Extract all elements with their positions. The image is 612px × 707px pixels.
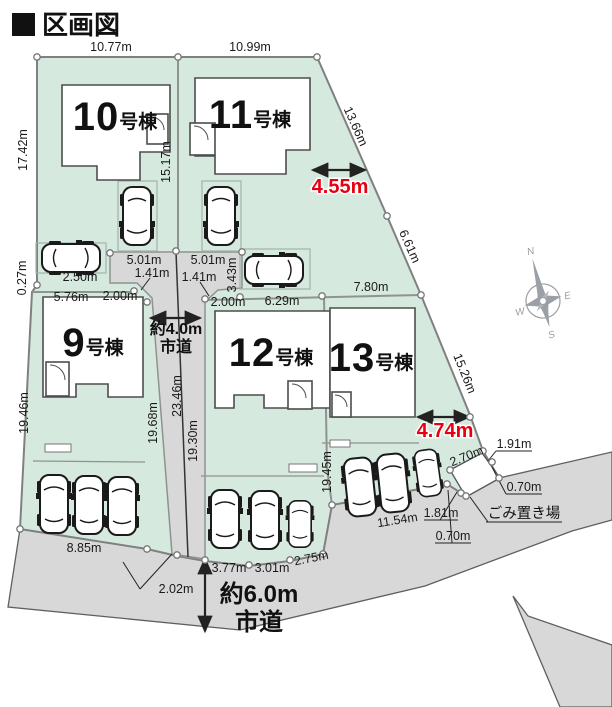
garbage-area-label: ごみ置き場: [488, 505, 561, 522]
dimension-label: 1.41m: [135, 266, 170, 280]
dimension-label: 0.70m: [507, 480, 542, 494]
compass-n: N: [526, 246, 536, 259]
compass-e: E: [563, 290, 572, 302]
road-4m-label: 市道: [160, 337, 192, 356]
road-6m-label: 約6.0m: [220, 580, 299, 608]
title-bullet-icon: [12, 13, 35, 36]
dimension-label: 2.50m: [63, 270, 98, 284]
dimension-label: 2.00m: [103, 289, 138, 303]
dimension-label: 2.00m: [211, 295, 246, 309]
dimension-label: 3.43m: [225, 258, 239, 293]
dimension-label: 6.29m: [265, 294, 300, 308]
dimension-label: 15.17m: [159, 141, 173, 183]
building-13-entry: [332, 392, 351, 417]
dimension-label: 5.76m: [54, 290, 89, 304]
plot-map-page: 区画図: [0, 0, 612, 707]
dimension-label: 5.01m: [191, 253, 226, 267]
dimension-label: 2.02m: [159, 582, 194, 596]
dimension-label: 23.46m: [170, 375, 184, 417]
dimension-label: 0.27m: [15, 261, 29, 296]
dimension-label: 19.30m: [186, 420, 200, 462]
dimension-label: 0.70m: [436, 529, 471, 543]
page-title: 区画図: [12, 10, 120, 40]
road-4m-label: 約4.0m: [150, 319, 202, 338]
dimension-label: 1.91m: [497, 437, 532, 451]
dimension-label-red: 4.55m: [312, 176, 369, 198]
road-branch: [513, 596, 612, 707]
dimension-label: 3.77m: [212, 561, 247, 575]
dimension-label: 17.42m: [16, 129, 30, 171]
dimension-label: 19.45m: [320, 451, 334, 493]
dimension-label: 7.80m: [354, 280, 389, 294]
road-6m-label: 市道: [235, 608, 283, 636]
compass-s: S: [547, 329, 556, 341]
plot-map: 区画図: [0, 0, 612, 707]
dimension-label: 5.01m: [127, 253, 162, 267]
dimension-label: 19.46m: [17, 392, 31, 434]
dimension-label-red: 4.74m: [417, 420, 474, 442]
dimension-label: 3.01m: [255, 561, 290, 575]
dimension-label: 1.81m: [424, 506, 459, 520]
compass-icon: N E S W: [501, 240, 581, 348]
compass-w: W: [514, 306, 527, 319]
dimension-label: 10.99m: [229, 40, 271, 54]
dimension-label: 1.41m: [182, 270, 217, 284]
dimension-label: 10.77m: [90, 40, 132, 54]
page-title-text: 区画図: [42, 10, 120, 40]
dimension-label: 8.85m: [67, 541, 102, 555]
dimension-label: 19.68m: [146, 402, 160, 444]
building-12-entry: [288, 381, 312, 409]
